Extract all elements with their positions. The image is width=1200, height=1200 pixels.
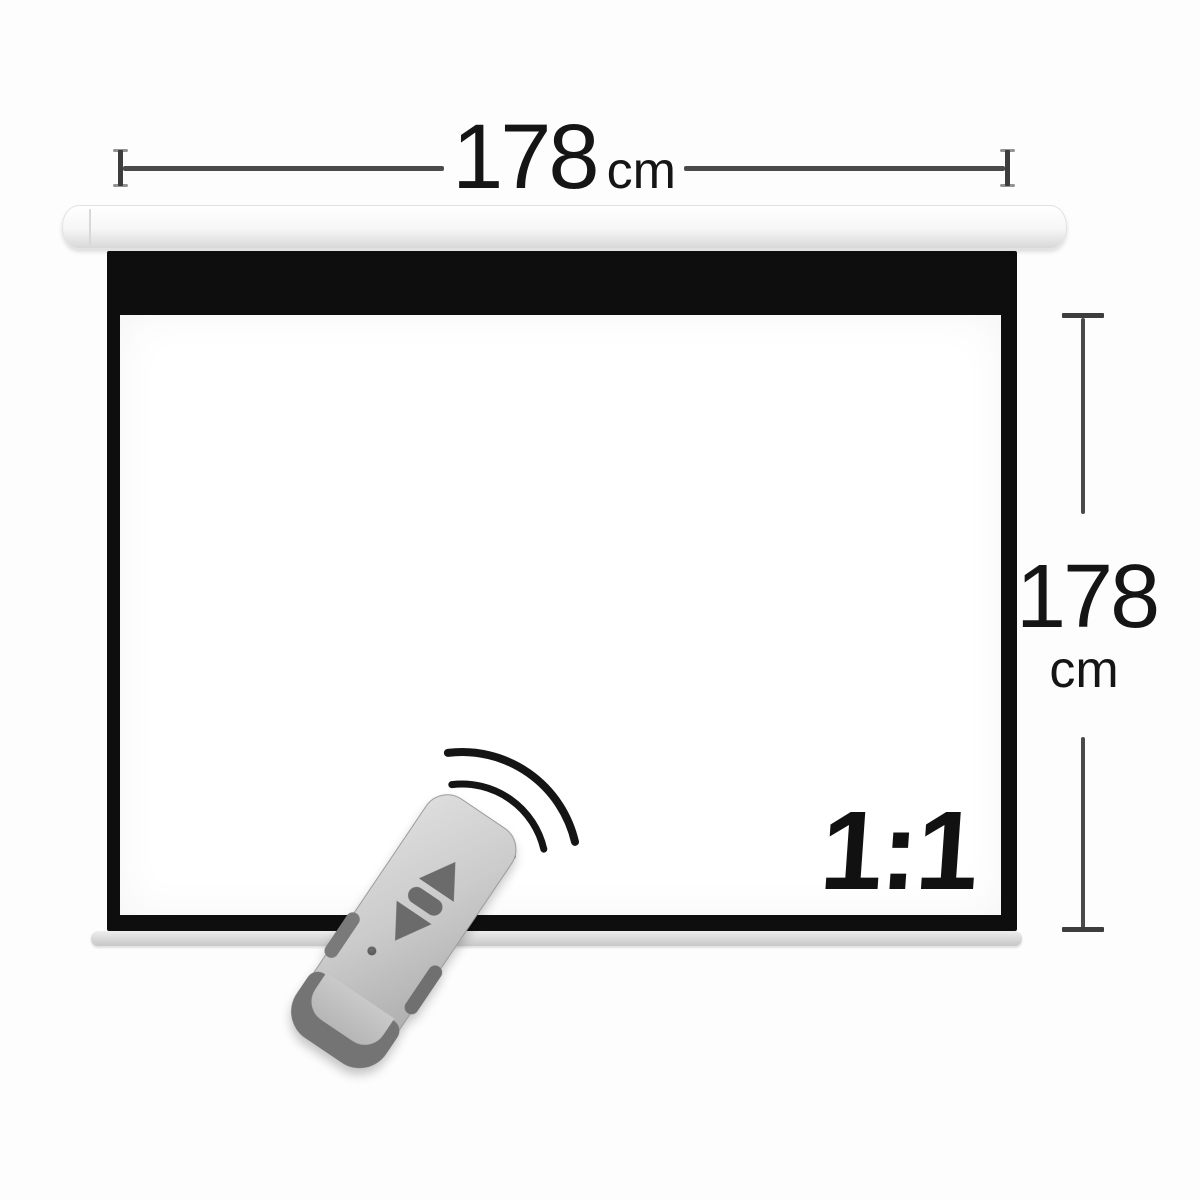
width-unit: cm bbox=[607, 145, 676, 197]
projector-screen-figure: 178 cm 1:1 178 cm bbox=[0, 0, 1200, 1200]
width-value: 178 bbox=[452, 111, 597, 203]
height-dimension-line-lower bbox=[1081, 737, 1085, 929]
width-dimension-right-tick bbox=[1005, 150, 1010, 186]
height-dimension-line-upper bbox=[1081, 318, 1085, 514]
aspect-ratio-label: 1:1 bbox=[817, 795, 981, 907]
width-dimension-line-left bbox=[123, 166, 444, 171]
screen-housing bbox=[62, 205, 1067, 249]
width-dimension-left-tick bbox=[118, 150, 123, 186]
width-dimension-label: 178 cm bbox=[444, 111, 684, 203]
height-value: 178 bbox=[1016, 552, 1152, 642]
bottom-weight-bar bbox=[91, 931, 1022, 946]
width-dimension-line-right bbox=[684, 166, 1005, 171]
width-dimension: 178 cm bbox=[118, 150, 1010, 186]
height-dimension-bottom-tick bbox=[1062, 927, 1104, 932]
height-unit: cm bbox=[1016, 644, 1152, 696]
